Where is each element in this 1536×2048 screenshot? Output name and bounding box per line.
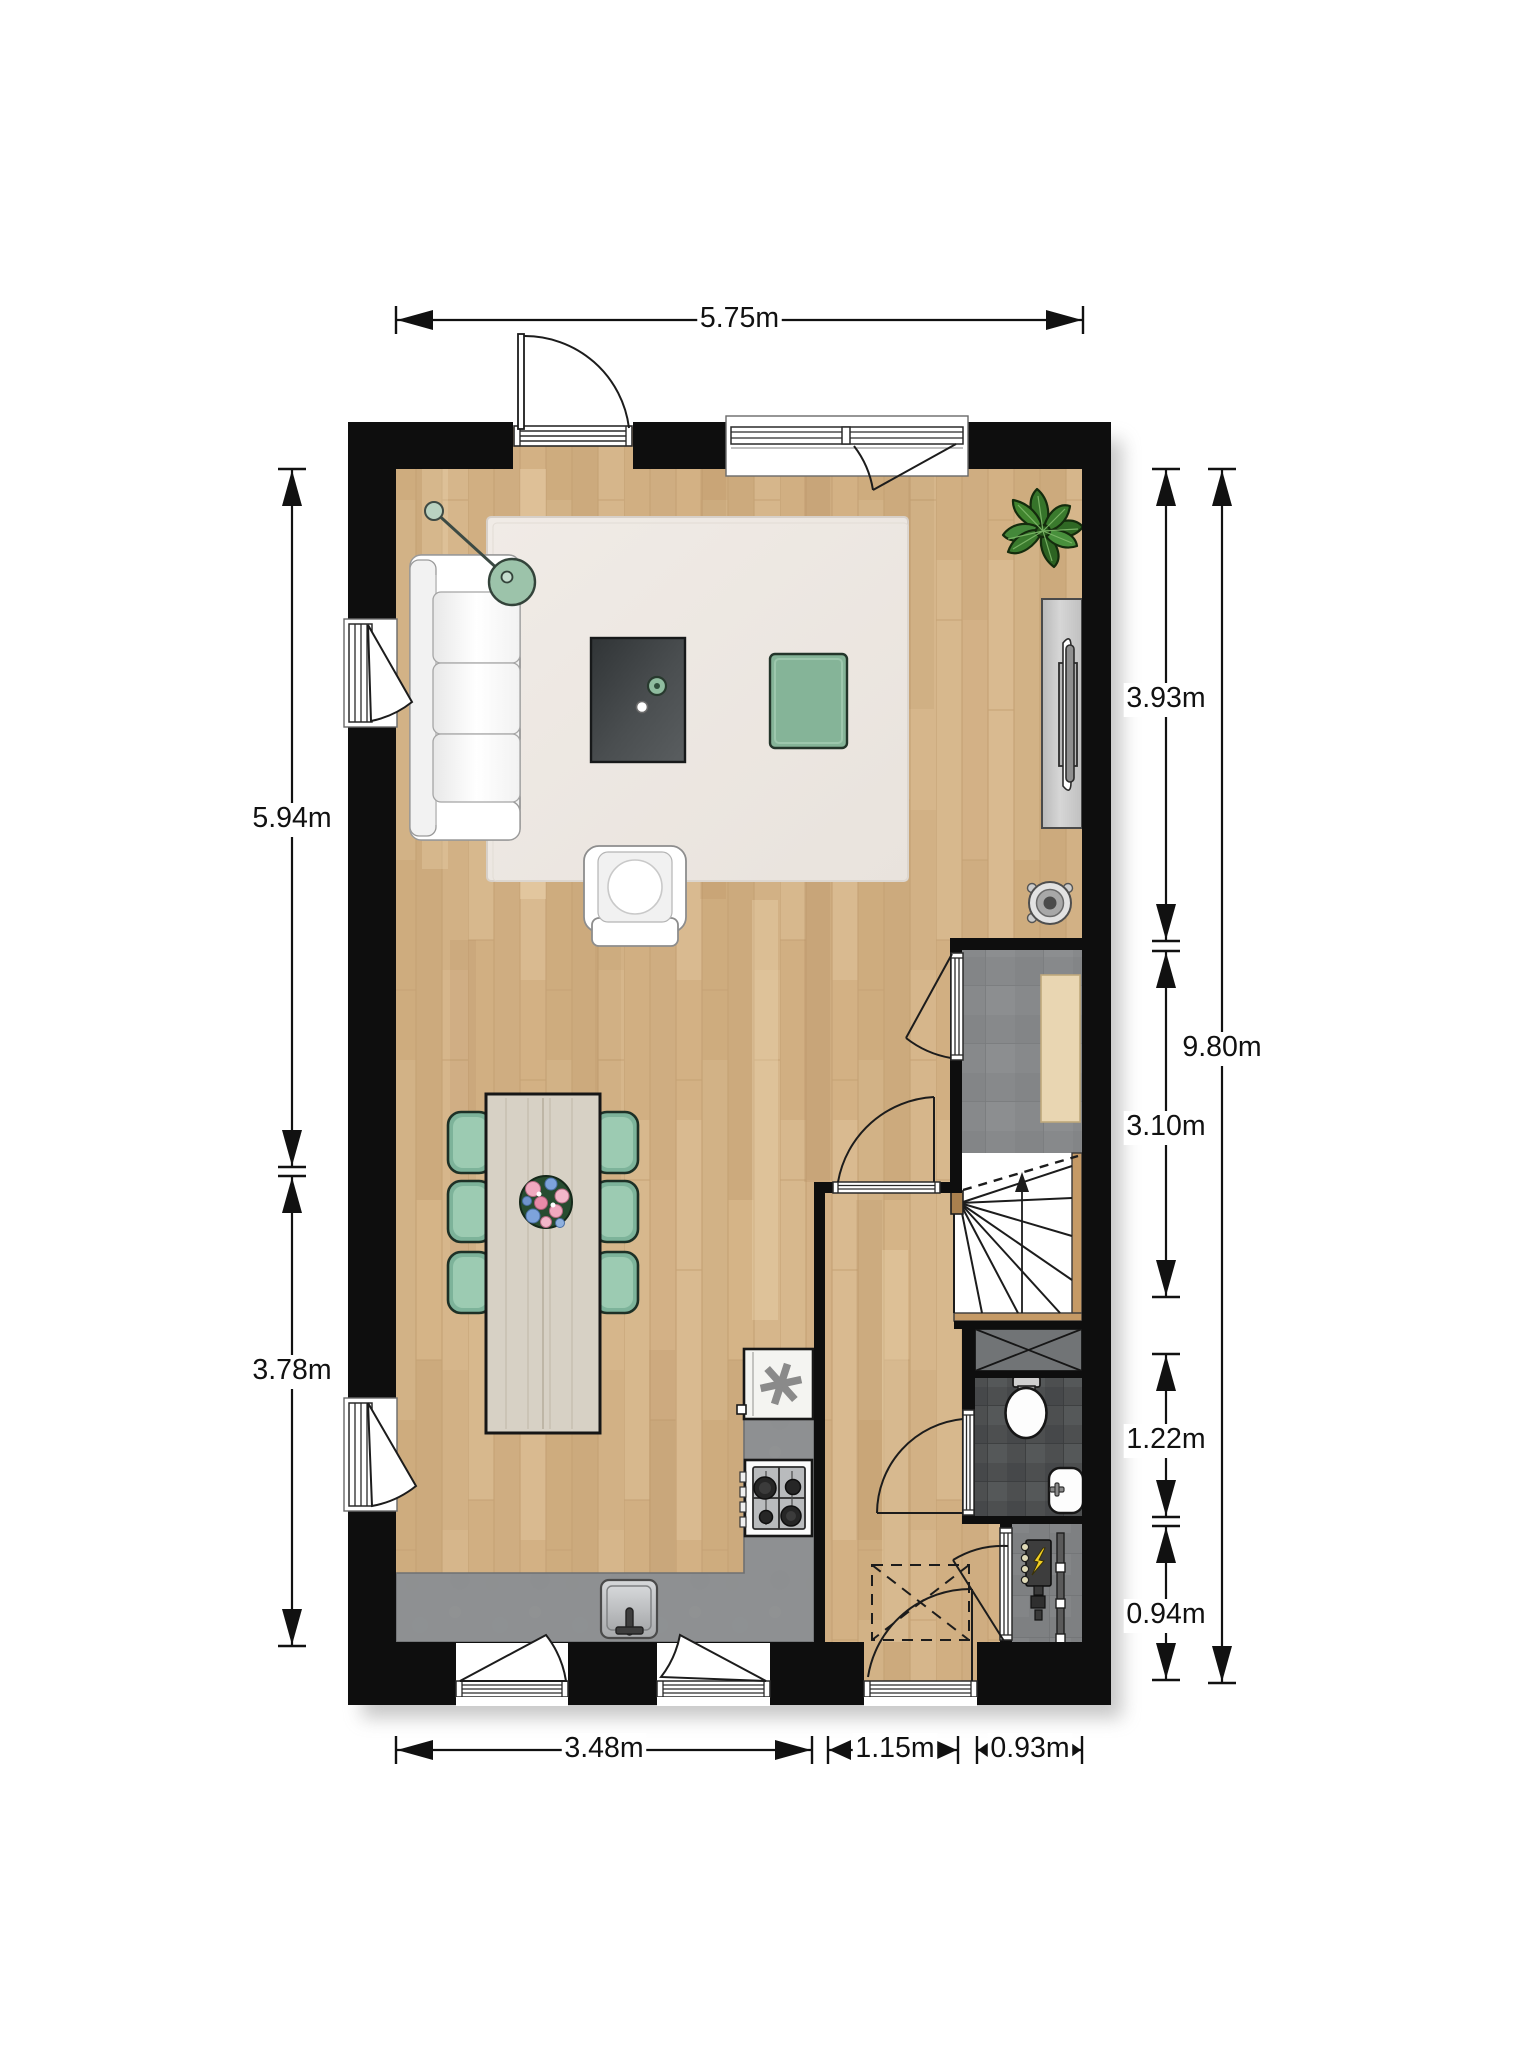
svg-text:3.93m: 3.93m	[1126, 682, 1205, 714]
svg-text:9.80m: 9.80m	[1182, 1031, 1261, 1063]
svg-text:5.75m: 5.75m	[700, 302, 779, 334]
svg-text:0.93m: 0.93m	[990, 1732, 1069, 1764]
svg-text:5.94m: 5.94m	[252, 802, 331, 834]
svg-text:3.10m: 3.10m	[1126, 1110, 1205, 1142]
svg-text:1.22m: 1.22m	[1126, 1423, 1205, 1455]
svg-text:0.94m: 0.94m	[1126, 1598, 1205, 1630]
svg-text:1.15m: 1.15m	[855, 1732, 934, 1764]
svg-text:3.78m: 3.78m	[252, 1354, 331, 1386]
svg-text:3.48m: 3.48m	[564, 1732, 643, 1764]
